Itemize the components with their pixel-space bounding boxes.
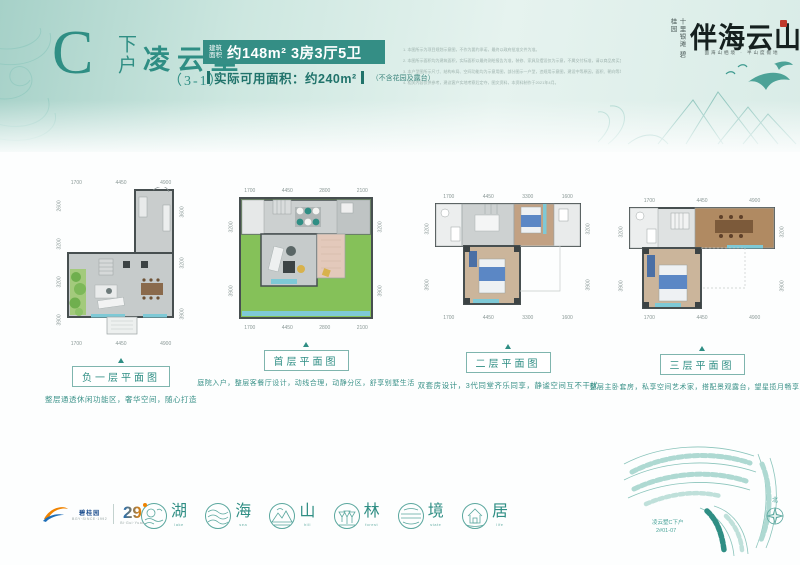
dims-bottom: 170044504900 bbox=[623, 313, 781, 322]
brand-tagline: 面海山栖境 · 半山度假地 bbox=[692, 50, 792, 56]
plan-label: 负一层平面图 bbox=[72, 366, 170, 387]
floorplan-second: 1700445033001600 32003900 bbox=[412, 192, 604, 391]
plan-label-wrap: 负一层平面图 bbox=[72, 358, 170, 387]
sea-icon bbox=[204, 502, 232, 530]
north-label: 北 bbox=[772, 496, 778, 504]
dims-top: 170044504900 bbox=[54, 178, 188, 187]
dims-right: 360032003900 bbox=[177, 187, 188, 339]
floorplan-third: 170044504900 32003900 bbox=[606, 196, 798, 392]
dims-right: 32003900 bbox=[777, 205, 788, 313]
triangle-marker-icon bbox=[303, 342, 309, 347]
dims-top: 170044504900 bbox=[623, 196, 781, 205]
plan-label: 二层平面图 bbox=[466, 352, 551, 373]
developer-logo-block: 碧桂园 BGY·SINCE·1992 29 Bi·Gui·Yuan bbox=[40, 503, 145, 525]
feature-en: sea bbox=[239, 522, 247, 527]
disclaimer-list: 1. 本图所示为项目规划示意图，不作为要约承诺，最终以政府批准文件为准。2. 本… bbox=[403, 44, 621, 88]
disclaimer-line: 3. 本户型图所示尺寸、结构布局、空间功能均为示意用图，部分图示一户型，违规用示… bbox=[403, 66, 621, 77]
third-plan-drawing bbox=[627, 205, 777, 313]
plan-label-wrap: 三层平面图 bbox=[660, 346, 745, 375]
feature-lake: 湖lake bbox=[140, 502, 187, 530]
plan-label: 三层平面图 bbox=[660, 354, 745, 375]
triangle-marker-icon bbox=[505, 344, 511, 349]
feature-en: state bbox=[430, 522, 441, 527]
dims-left: 32003900 bbox=[422, 201, 433, 313]
feature-row: 湖lake 海sea 山hill 林forest bbox=[140, 502, 508, 530]
unit-letter: C bbox=[52, 18, 93, 89]
dims-right: 32003900 bbox=[583, 201, 594, 313]
built-area-value: 约148m² 3房3厅5卫 bbox=[227, 42, 362, 63]
feature-en: lake bbox=[174, 522, 183, 527]
developer-swoosh-icon bbox=[40, 503, 70, 525]
highlighted-units bbox=[707, 511, 724, 550]
life-icon bbox=[461, 502, 489, 530]
built-area-box: 建筑 面积 约148m² 3房3厅5卫 bbox=[203, 40, 385, 64]
dims-top: 1700445028002100 bbox=[231, 186, 381, 195]
dims-top: 1700445033001600 bbox=[429, 192, 587, 201]
dims-right: 32003900 bbox=[375, 195, 386, 323]
floorplan-poster: { "header": { "unit_letter": "C", "unit_… bbox=[0, 0, 800, 565]
state-icon bbox=[397, 502, 425, 530]
right-bar bbox=[361, 71, 364, 84]
feature-char: 山 bbox=[299, 502, 315, 522]
developer-subtext: BGY·SINCE·1992 bbox=[72, 517, 107, 521]
dims-left: 32003900 bbox=[226, 195, 237, 323]
dims-bottom: 1700445028002100 bbox=[231, 323, 381, 332]
triangle-marker-icon bbox=[699, 346, 705, 351]
dims-bottom: 170044504900 bbox=[54, 339, 188, 348]
site-plan-label-line1: 凌云墅C下户 bbox=[652, 518, 683, 526]
feature-en: hill bbox=[304, 522, 311, 527]
feature-hill: 山hill bbox=[268, 502, 315, 530]
feature-char: 林 bbox=[364, 502, 380, 522]
logo-divider bbox=[113, 504, 114, 524]
feature-life: 居life bbox=[461, 502, 508, 530]
left-bar bbox=[207, 71, 210, 84]
feature-sea: 海sea bbox=[204, 502, 251, 530]
plan-label-wrap: 二层平面图 bbox=[466, 344, 551, 373]
unit-suffix: 下户 bbox=[114, 34, 136, 76]
forest-icon bbox=[333, 502, 361, 530]
disclaimer-line: 4. 相关内容仅供参考，建议客户实地考察后定夺，图文资料，本资料制作于2021年… bbox=[403, 77, 621, 88]
feature-char: 湖 bbox=[171, 502, 187, 522]
basement-plan-drawing bbox=[65, 187, 177, 339]
floorplan-basement: 170044504900 2600320032003900 bbox=[35, 178, 207, 405]
plan-caption: 双套房设计，3代同堂齐乐同享，静谧空间互不干扰 bbox=[418, 380, 599, 391]
usable-area-line: 实际可用面积：约240m² （不含花园及露台） bbox=[203, 68, 435, 87]
ground-plan-drawing bbox=[237, 195, 375, 323]
feature-char: 海 bbox=[235, 502, 251, 522]
site-plan-map: 凌云墅C下户 2#01-07 北 bbox=[622, 436, 794, 562]
usable-area-text: 实际可用面积：约240m² bbox=[214, 68, 357, 87]
plan-label: 首层平面图 bbox=[264, 350, 349, 371]
hill-icon bbox=[268, 502, 296, 530]
site-plan-label-line2: 2#01-07 bbox=[656, 528, 676, 534]
plan-caption: 整层通透休闲功能区，奢华空间，随心打造 bbox=[45, 394, 197, 405]
header-fade bbox=[0, 100, 800, 160]
brand-vertical-text: 十里银滩 碧桂园 bbox=[668, 18, 686, 62]
dims-left: 32003900 bbox=[616, 205, 627, 313]
developer-name: 碧桂园 bbox=[79, 508, 100, 517]
triangle-marker-icon bbox=[118, 358, 124, 363]
second-plan-drawing bbox=[433, 201, 583, 313]
disclaimer-line: 2. 本图所示面积均为建筑面积，实际面积以最终测绘报告为准，装修、家具及摆设仅为… bbox=[403, 55, 621, 66]
feature-char: 居 bbox=[492, 502, 508, 522]
dims-bottom: 1700445033001600 bbox=[429, 313, 587, 322]
feature-forest: 林forest bbox=[333, 502, 380, 530]
plan-label-wrap: 首层平面图 bbox=[264, 342, 349, 371]
brand-seal-icon bbox=[780, 20, 787, 27]
disclaimer-line: 1. 本图所示为项目规划示意图，不作为要约承诺，最终以政府批准文件为准。 bbox=[403, 44, 621, 55]
feature-en: forest bbox=[365, 522, 378, 527]
plan-caption: 整层主卧套房，私享空间艺术家，搭配景观露台，望星揽月畅享天地 bbox=[590, 382, 800, 392]
floorplan-ground: 1700445028002100 32003900 bbox=[208, 186, 404, 388]
anniversary-number: 29 bbox=[123, 504, 142, 521]
built-area-label: 建筑 面积 bbox=[209, 45, 222, 59]
feature-char: 境 bbox=[428, 502, 444, 522]
feature-en: life bbox=[496, 522, 503, 527]
feature-state: 境state bbox=[397, 502, 444, 530]
anniversary-block: 29 Bi·Gui·Yuan bbox=[120, 504, 144, 525]
dims-left: 2600320032003900 bbox=[54, 187, 65, 339]
plan-caption: 庭院入户，整层客餐厅设计，动线合理，动静分区，舒享别墅生活 bbox=[197, 378, 415, 388]
degree-dot-icon bbox=[143, 503, 147, 507]
